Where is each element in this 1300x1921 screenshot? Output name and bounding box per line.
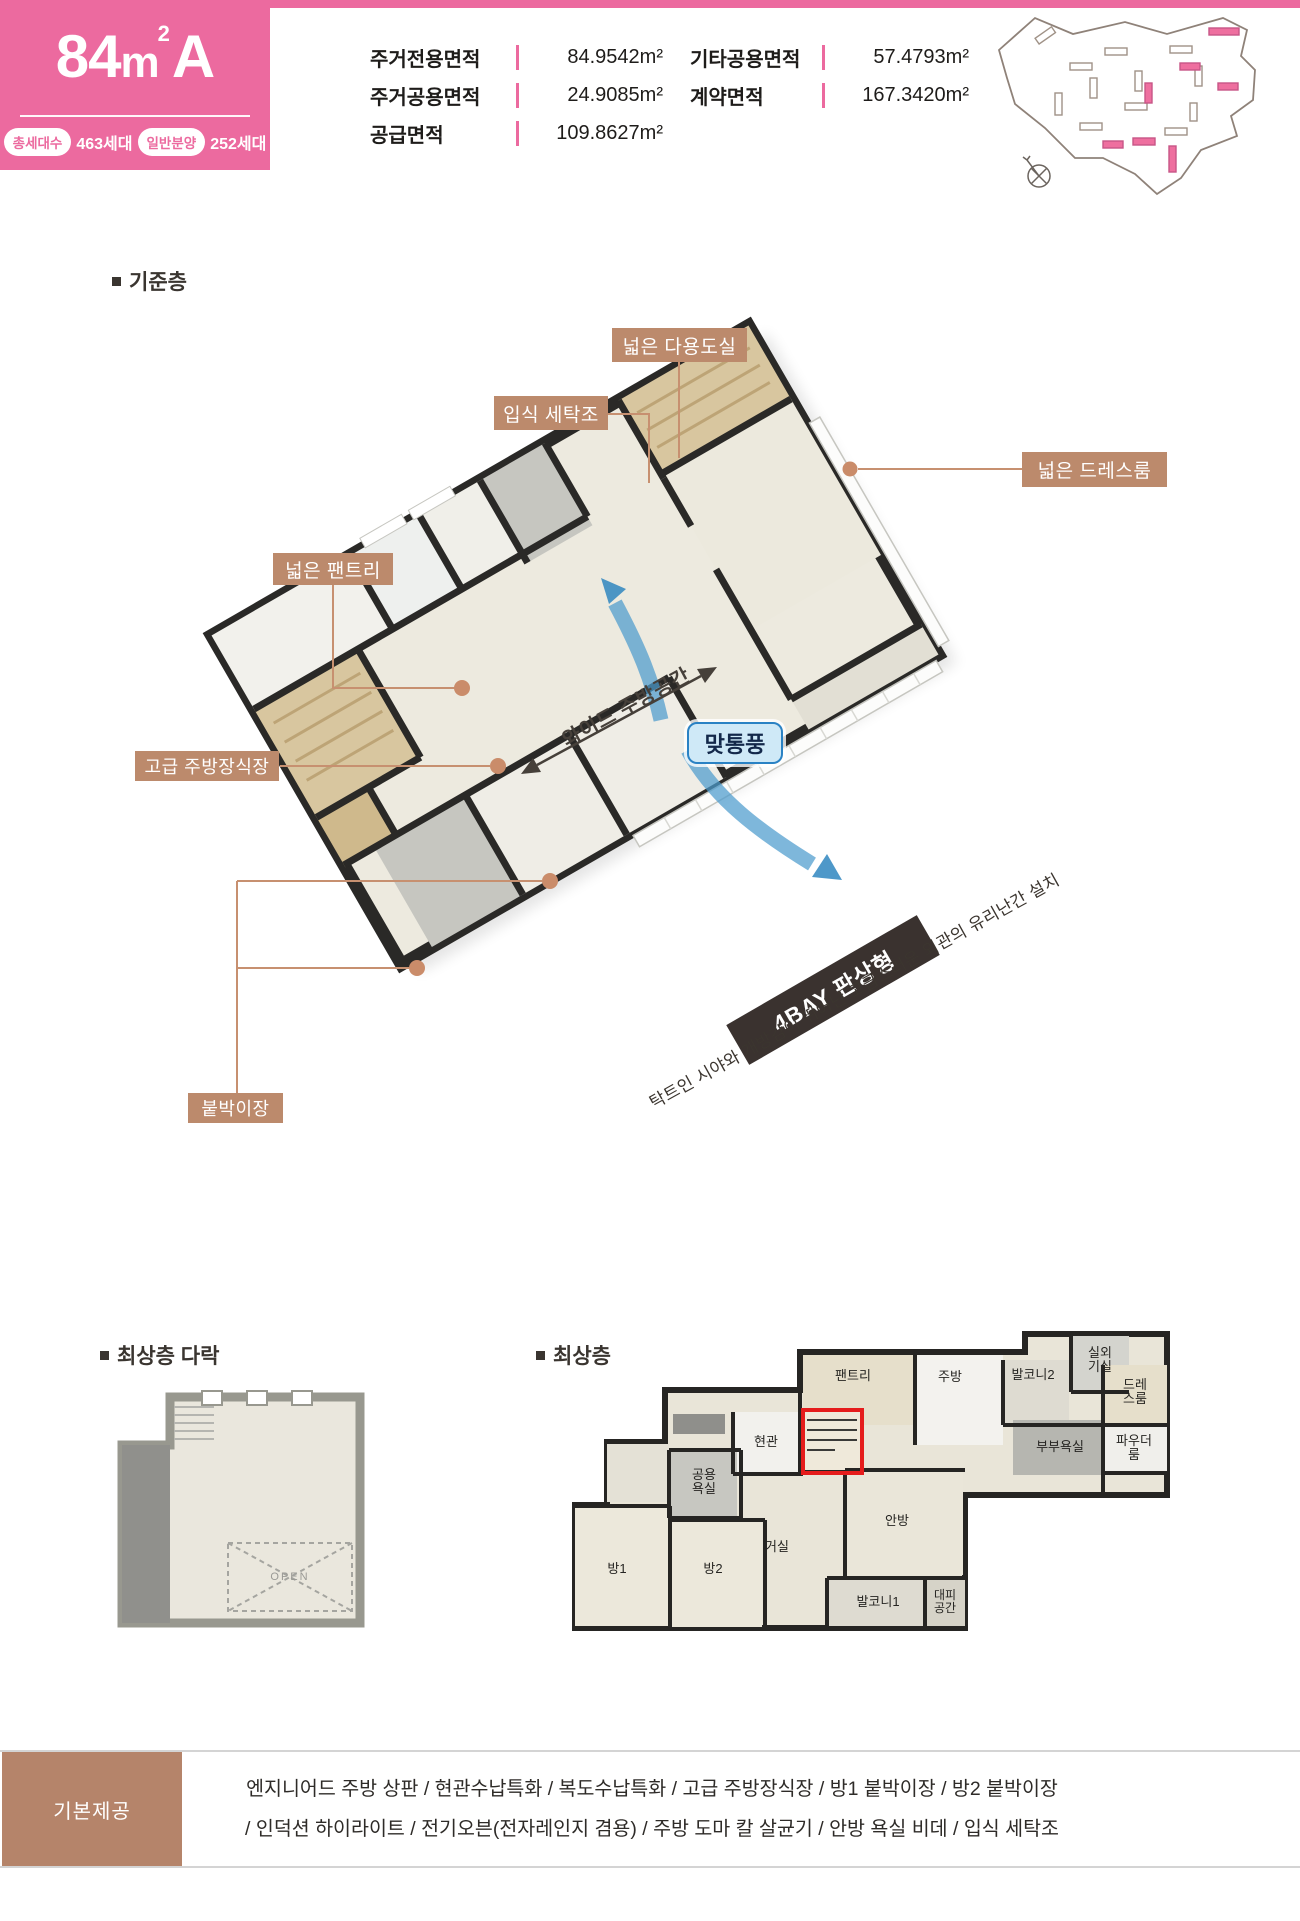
room-living: 거실	[765, 1540, 789, 1554]
provision-bottom-border	[0, 1866, 1300, 1868]
callout-kitchen-cabinet: 고급 주방장식장	[135, 751, 279, 781]
provision-title-box: 기본제공	[2, 1752, 182, 1866]
floorplan-brochure-page: { "colors": { "brand_pink": "#ec6a9f", "…	[0, 0, 1300, 1921]
leader-lines	[237, 362, 1022, 1093]
unit-type-divider	[20, 115, 250, 117]
title-bullet	[536, 1351, 545, 1360]
site-map	[985, 8, 1295, 203]
area-table-right: 기타공용면적57.4793m² 계약면적167.3420m²	[690, 38, 969, 114]
room-1: 방1	[607, 1562, 626, 1576]
total-households-badge: 총세대수	[4, 128, 72, 156]
callout-dressroom: 넓은 드레스룸	[1022, 452, 1167, 487]
room-powder: 파우더룸	[1116, 1434, 1152, 1462]
open-label: OPEN	[270, 1571, 309, 1583]
provision-line-1: 엔지니어드 주방 상판 / 현관수납특화 / 복도수납특화 / 고급 주방장식장…	[246, 1769, 1058, 1809]
attic-plan	[110, 1385, 375, 1630]
room-outdoor-unit: 실외기실	[1083, 1346, 1117, 1374]
callout-utility-room: 넓은 다용도실	[612, 328, 747, 362]
area-row: 주거전용면적84.9542m²	[370, 38, 663, 76]
total-households-value: 463세대	[76, 130, 132, 154]
room-balcony1: 발코니1	[856, 1595, 899, 1609]
unit-type-unit: m2	[121, 38, 172, 87]
title-bullet	[100, 1351, 109, 1360]
room-master-bath: 부부욕실	[1036, 1440, 1084, 1454]
area-row: 계약면적167.3420m²	[690, 76, 969, 114]
cross-vent-badge: 맞통풍	[687, 722, 783, 764]
callout-laundry: 입식 세탁조	[494, 396, 608, 430]
general-sale-value: 252세대	[210, 130, 266, 154]
room-pantry: 팬트리	[835, 1369, 871, 1383]
unit-type-number: 84	[56, 23, 121, 90]
room-entrance: 현관	[754, 1435, 778, 1449]
room-2: 방2	[703, 1562, 722, 1576]
header-accent-bar	[270, 0, 1300, 8]
household-badges: 총세대수 463세대 일반분양 252세대	[4, 128, 266, 156]
room-balcony2: 발코니2	[1011, 1368, 1054, 1382]
leader-dots	[409, 462, 858, 977]
attic-title: 최상층 다락	[100, 1340, 219, 1370]
area-row: 기타공용면적57.4793m²	[690, 38, 969, 76]
room-shelter: 대피공간	[930, 1589, 960, 1615]
general-sale-badge: 일반분양	[138, 128, 206, 156]
room-master: 안방	[885, 1514, 909, 1528]
provision-text: 엔지니어드 주방 상판 / 현관수납특화 / 복도수납특화 / 고급 주방장식장…	[182, 1752, 1122, 1866]
room-public-bath: 공용욕실	[687, 1468, 721, 1496]
callout-closet: 붙박이장	[188, 1093, 283, 1123]
provision-line-2: / 인덕션 하이라이트 / 전기오븐(전자레인지 겸용) / 주방 도마 칼 살…	[245, 1809, 1059, 1849]
annotation-overlay	[0, 250, 1300, 1200]
area-row: 공급면적109.8627m²	[370, 114, 663, 152]
room-kitchen: 주방	[938, 1370, 962, 1384]
area-row: 주거공용면적24.9085m²	[370, 76, 663, 114]
top-floor-plan: 팬트리 주방 발코니2 실외기실 드레스룸 현관 공용욕실 부부욕실 파우더룸 …	[545, 1330, 1170, 1645]
area-table-left: 주거전용면적84.9542m² 주거공용면적24.9085m² 공급면적109.…	[370, 38, 663, 152]
callout-pantry: 넓은 팬트리	[273, 553, 393, 585]
unit-type-title: 84m2A	[0, 22, 270, 91]
unit-type-suffix: A	[172, 23, 214, 90]
room-dressroom: 드레스룸	[1118, 1378, 1152, 1406]
compass-icon	[1023, 156, 1050, 187]
